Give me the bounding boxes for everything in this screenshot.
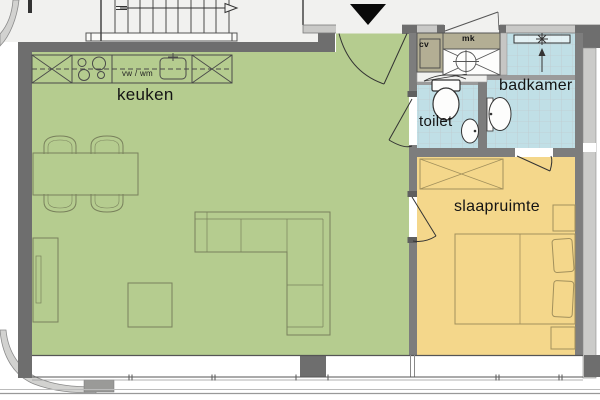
label-meter-cupboard: mk [462, 34, 475, 43]
label-central-heating: cv [419, 40, 429, 49]
floor-plan: keuken vw / wm cv mk badkamer toilet sla… [0, 0, 600, 400]
washbasin [487, 98, 511, 132]
room-label-bathroom: badkamer [499, 78, 573, 94]
hand-basin [462, 119, 479, 143]
label-dishwasher-washer: vw / wm [122, 70, 153, 78]
room-fills [32, 33, 575, 355]
room-label-bedroom: slaapruimte [454, 199, 540, 215]
room-label-kitchen: keuken [117, 86, 174, 103]
shower [443, 49, 500, 75]
room-kitchen-living [32, 33, 409, 355]
room-label-toilet: toilet [419, 114, 453, 129]
